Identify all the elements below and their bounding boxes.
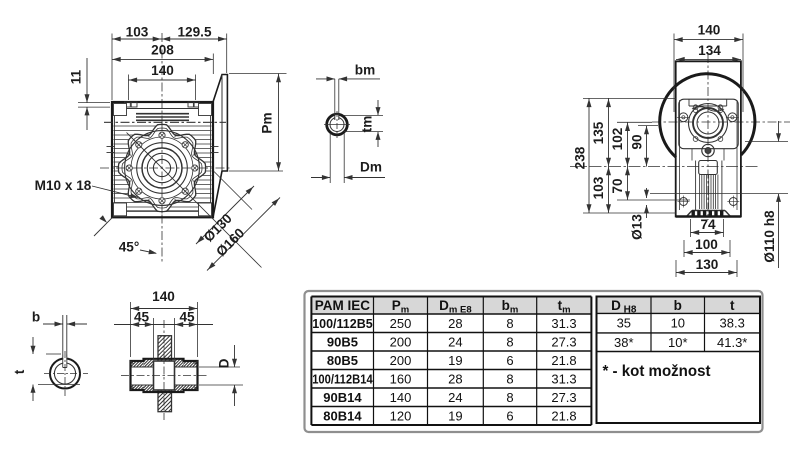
svg-text:* - kot možnost: * - kot možnost (603, 363, 711, 380)
svg-text:38.3: 38.3 (720, 316, 745, 331)
svg-text:200: 200 (390, 353, 412, 368)
svg-text:24: 24 (448, 334, 462, 349)
svg-text:45: 45 (134, 310, 150, 325)
svg-text:74: 74 (700, 217, 716, 232)
svg-text:28: 28 (448, 371, 462, 386)
svg-text:100/112B14: 100/112B14 (312, 371, 373, 386)
svg-text:41.3*: 41.3* (717, 335, 747, 350)
svg-text:M10 x 18: M10 x 18 (35, 178, 92, 193)
svg-text:100/112B5: 100/112B5 (312, 316, 373, 331)
svg-text:100: 100 (695, 237, 718, 252)
svg-text:19: 19 (448, 408, 462, 423)
svg-text:140: 140 (152, 289, 175, 304)
svg-text:28: 28 (448, 316, 462, 331)
svg-text:8: 8 (506, 316, 513, 331)
svg-text:8: 8 (506, 371, 513, 386)
svg-text:Ø110 h8: Ø110 h8 (762, 210, 777, 263)
svg-text:11: 11 (69, 69, 84, 84)
svg-text:208: 208 (151, 43, 174, 58)
svg-text:90B5: 90B5 (327, 334, 358, 349)
svg-text:6: 6 (506, 408, 513, 423)
svg-text:27.3: 27.3 (551, 390, 576, 405)
svg-text:90B14: 90B14 (323, 390, 362, 405)
svg-text:24: 24 (448, 390, 462, 405)
svg-text:135: 135 (591, 121, 606, 144)
svg-text:b: b (32, 310, 40, 325)
svg-text:238: 238 (572, 146, 587, 169)
svg-text:19: 19 (448, 353, 462, 368)
svg-text:45°: 45° (119, 240, 140, 255)
svg-text:160: 160 (390, 371, 412, 386)
svg-text:31.3: 31.3 (551, 371, 576, 386)
svg-text:D: D (217, 358, 232, 368)
svg-text:b: b (674, 298, 682, 313)
svg-text:Pm: Pm (260, 112, 275, 133)
svg-text:38*: 38* (614, 335, 634, 350)
svg-text:10*: 10* (668, 335, 688, 350)
svg-text:200: 200 (390, 334, 412, 349)
svg-text:140: 140 (390, 390, 412, 405)
svg-text:129.5: 129.5 (177, 25, 211, 40)
svg-text:PAM IEC: PAM IEC (315, 298, 371, 313)
svg-text:45: 45 (179, 310, 195, 325)
svg-text:21.8: 21.8 (551, 408, 576, 423)
svg-text:140: 140 (698, 23, 721, 38)
svg-text:250: 250 (390, 316, 412, 331)
svg-text:27.3: 27.3 (551, 334, 576, 349)
svg-text:10: 10 (671, 316, 685, 331)
svg-text:tm: tm (360, 116, 375, 133)
svg-text:134: 134 (698, 43, 721, 58)
svg-text:103: 103 (126, 25, 149, 40)
svg-text:6: 6 (506, 353, 513, 368)
svg-text:120: 120 (390, 408, 412, 423)
svg-text:130: 130 (696, 257, 719, 272)
svg-text:21.8: 21.8 (551, 353, 576, 368)
svg-text:35: 35 (617, 316, 631, 331)
svg-text:8: 8 (506, 334, 513, 349)
svg-text:80B5: 80B5 (327, 353, 358, 368)
svg-text:140: 140 (151, 63, 174, 78)
svg-text:Dm: Dm (360, 160, 382, 175)
svg-text:80B14: 80B14 (323, 408, 362, 423)
svg-text:t: t (12, 369, 27, 374)
svg-text:t: t (730, 298, 735, 313)
svg-text:90: 90 (629, 134, 644, 149)
svg-text:31.3: 31.3 (551, 316, 576, 331)
svg-text:102: 102 (610, 127, 625, 150)
svg-text:70: 70 (610, 178, 625, 193)
svg-text:Ø13: Ø13 (629, 214, 644, 240)
svg-text:bm: bm (355, 63, 375, 78)
svg-text:103: 103 (591, 176, 606, 199)
svg-text:8: 8 (506, 390, 513, 405)
